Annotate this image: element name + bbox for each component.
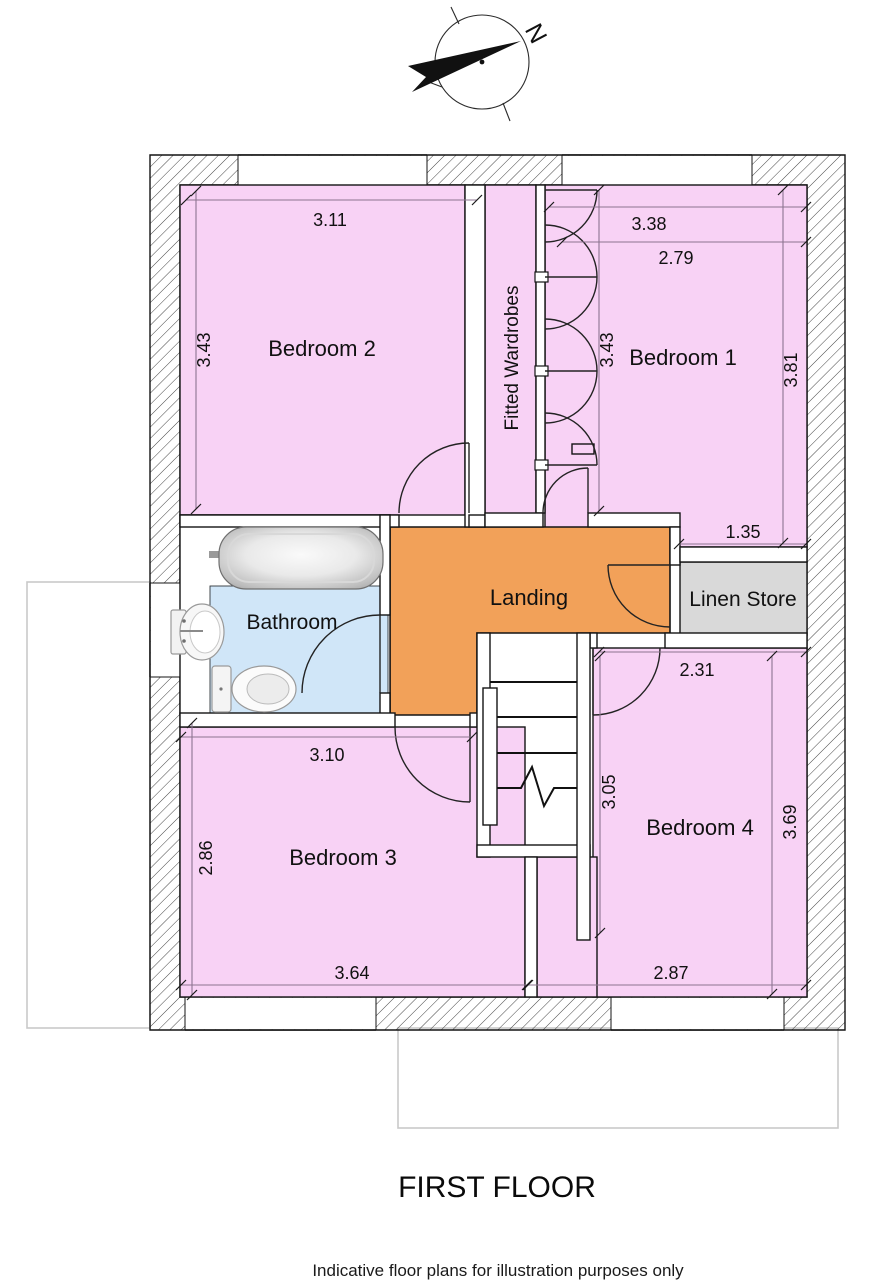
- wall-bedroom1-linen: [680, 547, 807, 562]
- label-bathroom: Bathroom: [246, 611, 337, 634]
- adjacent-outline-left: [27, 582, 150, 1028]
- wall-bedroom2-bathroom: [180, 515, 399, 527]
- adjacent-outline-bottom: [398, 1028, 838, 1128]
- label-bedroom-4: Bedroom 4: [646, 815, 754, 840]
- sink-icon: [171, 604, 224, 660]
- wall-stairs-right: [577, 633, 590, 940]
- label-bedroom-1: Bedroom 1: [629, 345, 737, 370]
- dim-label: 3.69: [780, 804, 800, 839]
- wall-landing-linen: [670, 527, 680, 565]
- wall-bedroom3-bedroom4: [525, 857, 537, 997]
- dim-label: 2.31: [679, 660, 714, 680]
- dim-label: 3.05: [599, 774, 619, 809]
- wall-segment: [485, 513, 543, 527]
- label-landing: Landing: [490, 585, 568, 610]
- dim-label: 3.38: [631, 214, 666, 234]
- floor-plan-svg: 3.11 3.43 3.38 2.79 3.43 3.81 1.35 2.31 …: [0, 0, 871, 1280]
- window-top-right: [562, 155, 752, 185]
- captions: FIRST FLOOR Indicative floor plans for i…: [312, 1171, 684, 1280]
- label-fitted-wardrobes: Fitted Wardrobes: [502, 285, 523, 430]
- window-bottom-left: [185, 997, 376, 1030]
- dim-label: 3.43: [597, 332, 617, 367]
- north-arrow: [408, 41, 521, 92]
- disclaimer-text: Indicative floor plans for illustration …: [312, 1261, 684, 1280]
- label-linen-store: Linen Store: [689, 588, 796, 611]
- wall-bedroom1-landing: [588, 513, 680, 527]
- page-title: FIRST FLOOR: [398, 1171, 596, 1204]
- dim-label: 3.10: [309, 745, 344, 765]
- north-compass-icon: N: [408, 7, 552, 121]
- wall-segment: [470, 713, 477, 727]
- floor-plan-page: 3.11 3.43 3.38 2.79 3.43 3.81 1.35 2.31 …: [0, 0, 871, 1280]
- window-top-left: [238, 155, 427, 185]
- wall-linen-bedroom4: [665, 633, 807, 648]
- wall-segment: [380, 693, 390, 715]
- wall-segment: [590, 633, 597, 648]
- wall-bathroom-bedroom3: [180, 713, 395, 727]
- toilet-icon: [212, 666, 296, 712]
- label-bedroom-3: Bedroom 3: [289, 845, 397, 870]
- north-label: N: [519, 19, 552, 48]
- window-bottom-right: [611, 997, 784, 1030]
- dim-label: 3.64: [334, 963, 369, 983]
- wall-bedroom2-corridor: [465, 185, 485, 527]
- label-bedroom-2: Bedroom 2: [268, 336, 376, 361]
- stair-handrail: [483, 688, 497, 825]
- dim-label: 2.86: [196, 840, 216, 875]
- dim-label: 3.11: [313, 210, 347, 230]
- dim-label: 3.81: [781, 352, 801, 387]
- dim-label: 1.35: [725, 522, 760, 542]
- wall-segment: [469, 515, 485, 527]
- dim-label: 2.79: [658, 248, 693, 268]
- stairs: [483, 682, 577, 825]
- dim-label: 2.87: [653, 963, 688, 983]
- bathtub-icon: [209, 527, 383, 589]
- wall-stairs-bottom: [477, 845, 590, 857]
- dim-label: 3.43: [194, 332, 214, 367]
